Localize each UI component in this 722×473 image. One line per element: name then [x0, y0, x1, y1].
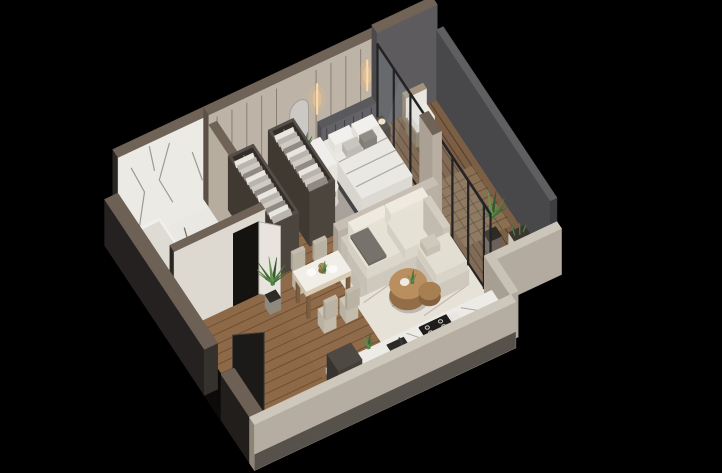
dining-plate-2: [328, 266, 337, 273]
coffee-table-nesting: [419, 282, 441, 306]
isometric-apartment-scene: [0, 0, 722, 473]
nightstand-lamp: [379, 119, 386, 125]
bathroom-doorway: [234, 222, 259, 306]
coffee-table-bowl: [400, 278, 409, 285]
floor-plan-render: [0, 0, 722, 473]
dining-plate-1: [307, 269, 316, 276]
